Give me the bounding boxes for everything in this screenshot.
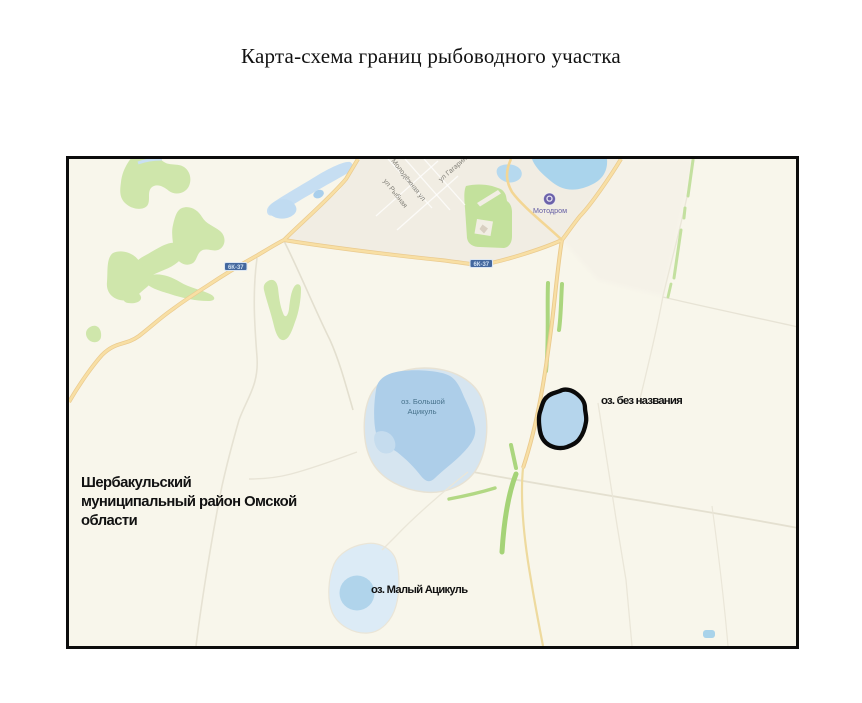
svg-text:Мотодром: Мотодром [533,206,567,215]
svg-text:оз. без названия: оз. без названия [601,395,682,407]
svg-text:Шербакульский: Шербакульский [81,475,192,491]
svg-text:6К-37: 6К-37 [228,265,244,271]
svg-text:области: области [81,513,138,529]
svg-text:оз. Большой: оз. Большой [401,397,445,406]
svg-text:оз. Малый Ацикуль: оз. Малый Ацикуль [371,584,468,596]
svg-text:6К-37: 6К-37 [473,262,489,268]
svg-text:муниципальный район Омской: муниципальный район Омской [81,494,297,510]
svg-text:Ацикуль: Ацикуль [407,407,436,416]
